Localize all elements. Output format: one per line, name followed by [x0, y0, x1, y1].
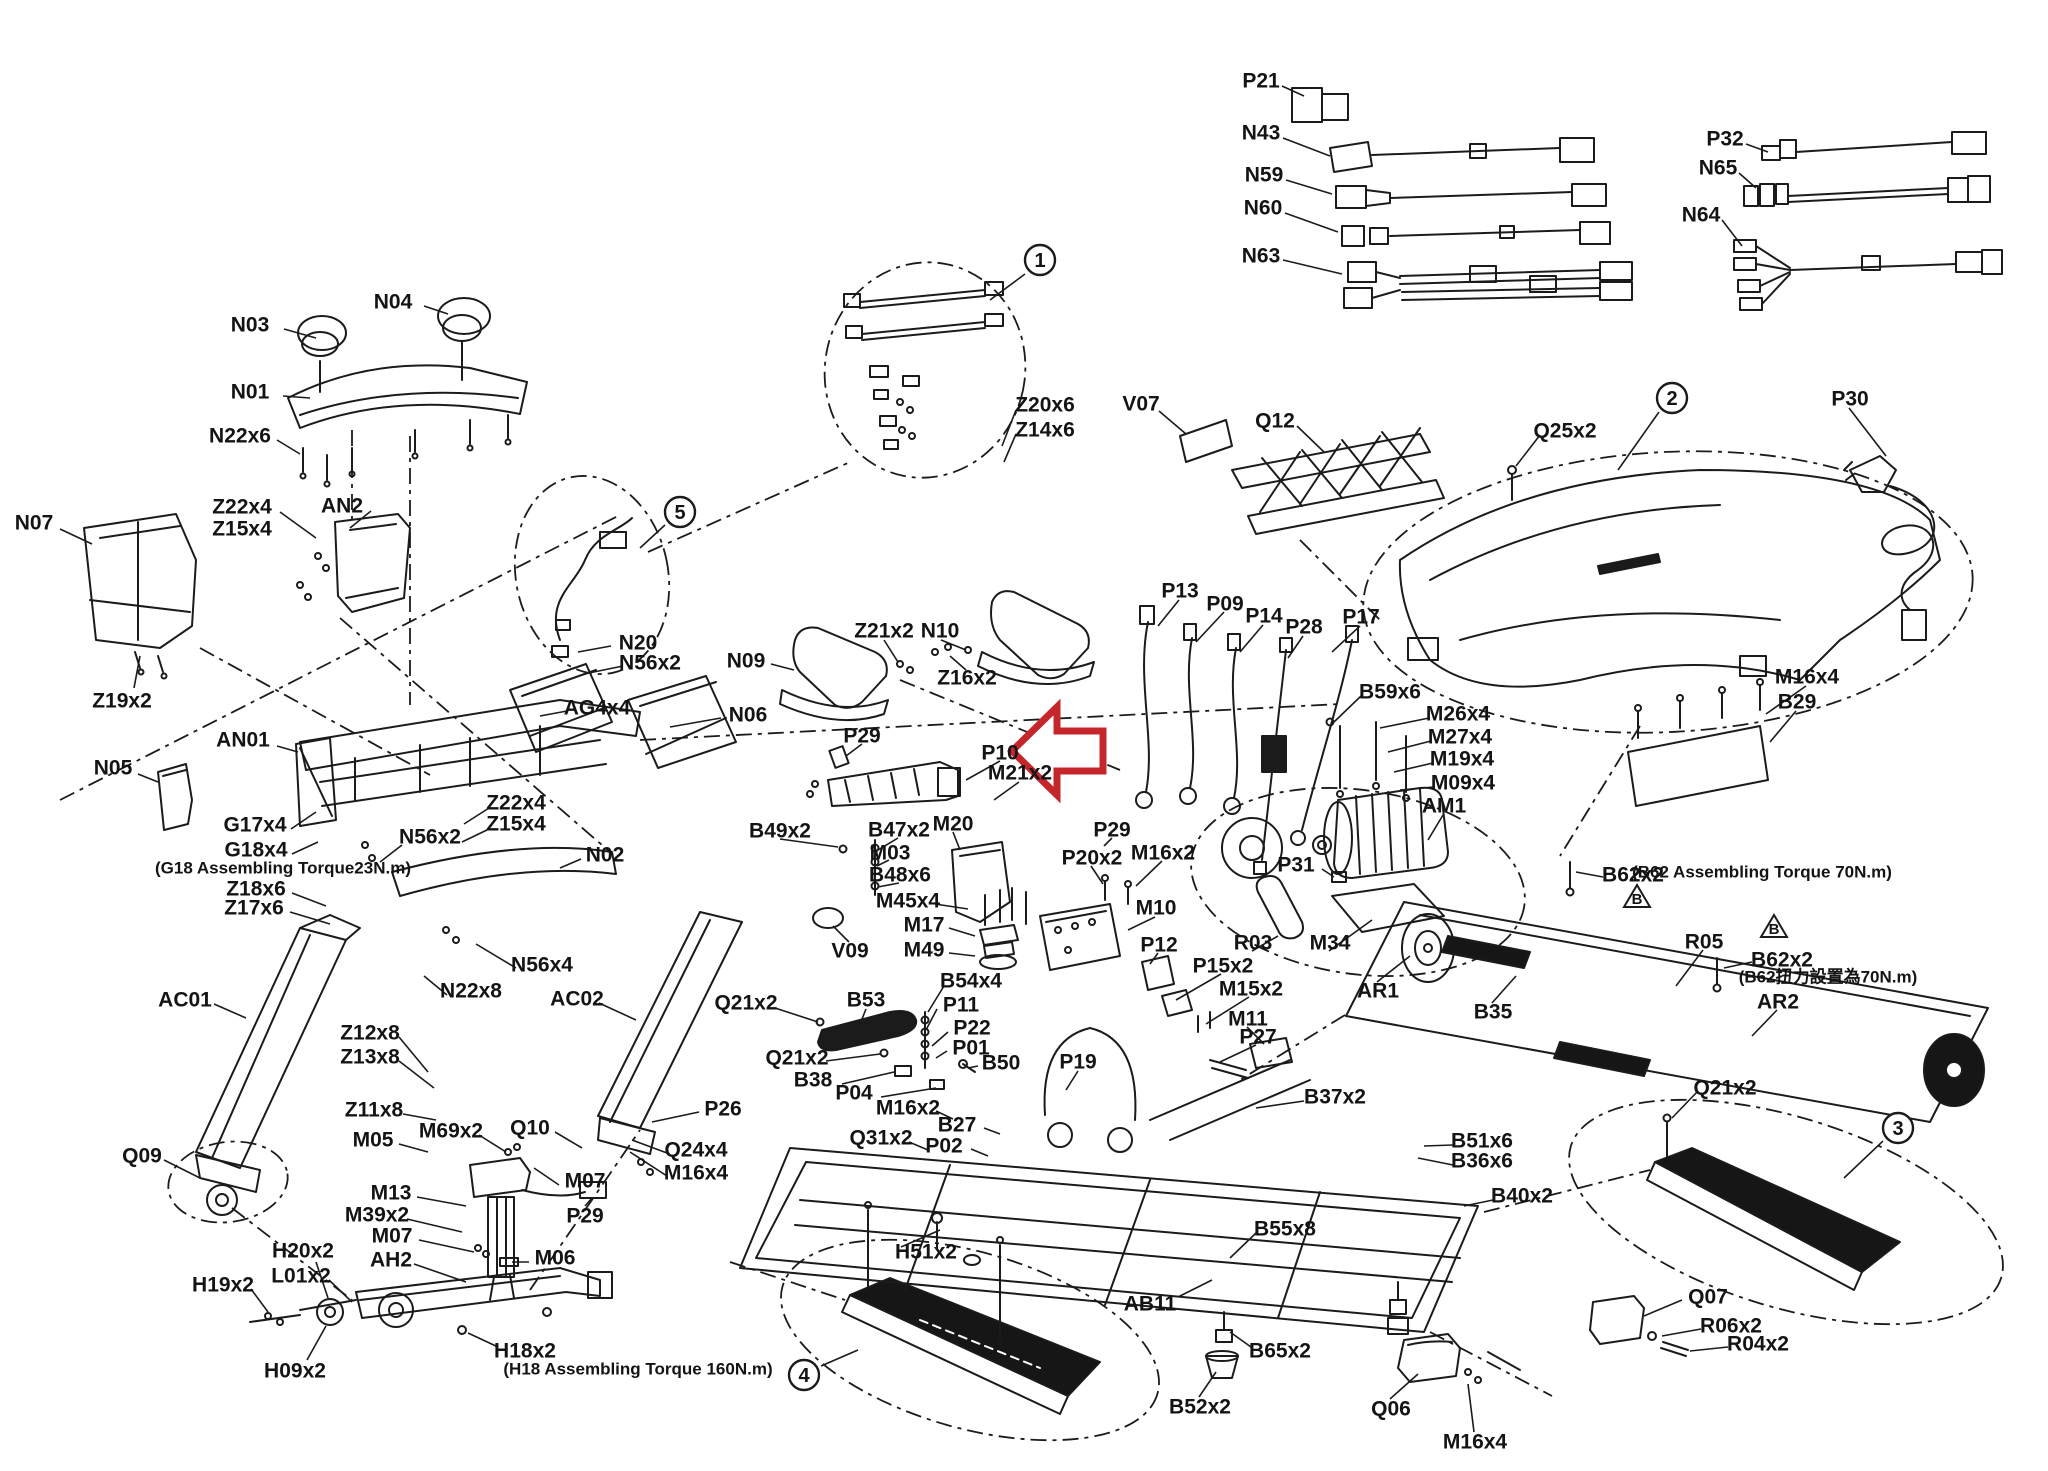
svg-text:B: B [1769, 921, 1780, 938]
svg-text:1: 1 [1034, 250, 1045, 272]
exploded-parts-diagram: 12345BB N03N04N01N22x6Z22x4Z15x4AN2N07Z1… [0, 0, 2048, 1471]
assembly-callout: 3 [1883, 1113, 1913, 1143]
svg-text:2: 2 [1666, 388, 1677, 410]
warning-triangle-icon: B [1761, 915, 1787, 938]
assembly-callout: 5 [665, 497, 695, 527]
svg-text:5: 5 [674, 502, 685, 524]
svg-text:B: B [1632, 891, 1643, 908]
svg-text:4: 4 [798, 1365, 810, 1387]
svg-text:3: 3 [1892, 1118, 1903, 1140]
assembly-callout: 4 [789, 1360, 819, 1390]
diagram-sketch: 12345BB [0, 0, 2048, 1471]
warning-triangle-icon: B [1624, 885, 1650, 908]
assembly-callout: 2 [1657, 383, 1687, 413]
assembly-callout: 1 [1025, 245, 1055, 275]
